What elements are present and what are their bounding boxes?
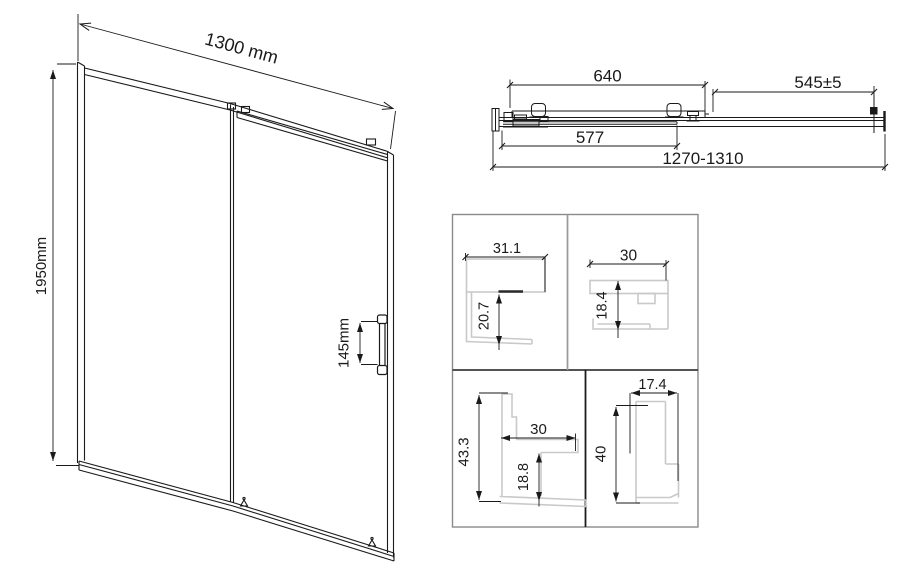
fixed-panel-edge — [231, 105, 234, 504]
dim-profile4-width: 17.4 — [630, 377, 678, 481]
door-height-label: 1950mm — [33, 237, 50, 295]
top-view: 640 545±5 577 1270-1310 — [492, 67, 885, 172]
door-handle — [378, 315, 388, 375]
profile3-width-label: 30 — [530, 421, 547, 438]
door-frame — [78, 62, 395, 561]
profile-detail-bottom-left: 43.3 30 18.8 — [456, 393, 587, 507]
left-wall-profile — [78, 62, 85, 463]
handle-bar — [380, 317, 386, 371]
dim-profile2-width: 30 — [590, 248, 666, 281]
bottom-guide-left-pin — [243, 497, 245, 499]
top-bracket — [367, 139, 376, 145]
extension-line — [391, 111, 396, 149]
bottom-guide-left — [241, 500, 248, 506]
dim-glass-width: 577 — [502, 126, 677, 151]
profile1-depth-label: 20.7 — [477, 302, 493, 330]
drawing-svg: 1300 mm 1950mm — [0, 0, 903, 572]
profile3-depth-label: 18.8 — [516, 463, 532, 491]
bottom-guide-right-pin — [371, 537, 373, 539]
front-view: 1300 mm 1950mm — [33, 14, 396, 561]
profile4-height-label: 40 — [593, 446, 610, 463]
profile3-height-label: 43.3 — [456, 437, 473, 466]
profile-shape — [467, 259, 546, 344]
profile-detail-bottom-right: 17.4 40 — [593, 377, 679, 503]
panel-width-label: 640 — [593, 67, 621, 86]
right-wall-profile — [388, 152, 394, 558]
dim-profile3-width: 30 — [501, 421, 576, 451]
dim-handle: 145mm — [336, 318, 378, 368]
handle-top-knob — [378, 315, 388, 324]
profile-detail-top-right: 30 18.4 — [590, 248, 668, 339]
glass-width-label: 577 — [576, 128, 604, 147]
opening-width-label: 545±5 — [794, 73, 841, 92]
bottom-rail — [79, 461, 394, 561]
dim-opening-width: 545±5 — [713, 73, 874, 112]
dim-door-width: 1300 mm — [78, 14, 396, 149]
adjustment-range-label: 1270-1310 — [662, 149, 743, 168]
dim-profile1-width: 31.1 — [466, 241, 546, 292]
top-track — [85, 68, 389, 158]
profile4-width-label: 17.4 — [638, 377, 666, 393]
dim-adjustment-range: 1270-1310 — [493, 132, 885, 172]
bottom-guide-right — [369, 540, 376, 546]
profile-shape — [636, 402, 679, 504]
dim-panel-width: 640 — [510, 67, 705, 113]
clamp-hardware — [503, 113, 548, 128]
profile-shape — [500, 394, 587, 507]
fixed-glass — [503, 122, 677, 125]
roller-left — [530, 104, 549, 118]
dim-profile3-height: 43.3 — [456, 393, 509, 502]
top-view-drawing — [492, 95, 885, 133]
profile-detail-top-left: 31.1 20.7 — [466, 241, 546, 350]
profile-details-grid: 31.1 20.7 30 1 — [453, 215, 699, 528]
wall-profile-right — [871, 95, 885, 133]
handle-height-label: 145mm — [336, 318, 353, 368]
dim-profile4-height: 40 — [593, 406, 649, 504]
roller-right — [665, 104, 684, 118]
technical-drawing-page: 1300 mm 1950mm — [0, 0, 903, 572]
profile2-width-label: 30 — [620, 248, 638, 265]
handle-bottom-knob — [378, 366, 388, 375]
door-width-label: 1300 mm — [203, 29, 281, 68]
profile1-width-label: 31.1 — [493, 241, 521, 257]
dim-door-height: 1950mm — [33, 64, 79, 466]
profile2-depth-label: 18.4 — [595, 291, 611, 319]
door-stopper — [687, 112, 700, 122]
